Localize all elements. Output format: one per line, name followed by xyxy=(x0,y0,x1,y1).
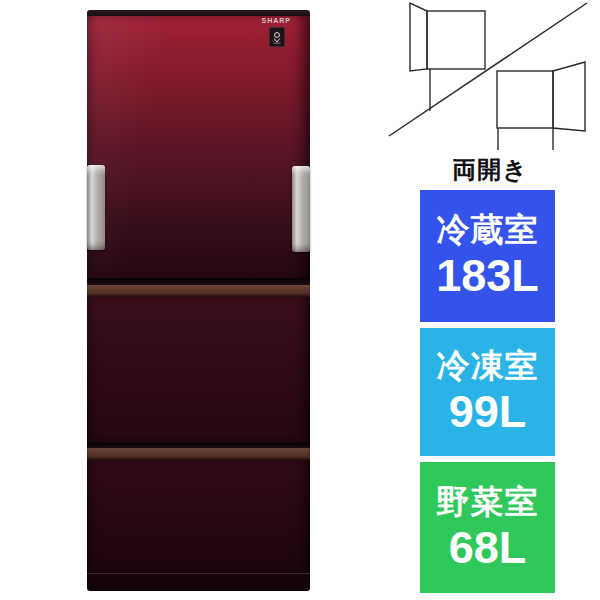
door-open-diagram xyxy=(378,0,598,155)
plasmacluster-icon xyxy=(269,27,285,47)
badge-label: 冷蔵室 xyxy=(420,212,555,248)
badge-label: 冷凍室 xyxy=(420,348,555,384)
badge-value: 68L xyxy=(420,524,555,572)
left-open-door-icon xyxy=(410,3,485,111)
door-drawer-seam xyxy=(87,278,310,285)
bottom-drawer-handle-bar xyxy=(87,448,310,460)
refrigerator-image: SHARP xyxy=(87,10,310,590)
capacity-badge-freezer: 冷凍室 99L xyxy=(420,328,555,456)
badge-label: 野菜室 xyxy=(420,484,555,520)
fridge-handle-left xyxy=(87,165,105,250)
capacity-badge-refrigerator: 冷蔵室 183L xyxy=(420,190,555,322)
fridge-bottom-drawer xyxy=(87,460,310,573)
fridge-main-door xyxy=(87,16,310,288)
capacity-badge-vegetable: 野菜室 68L xyxy=(420,462,555,593)
right-open-door-icon xyxy=(497,62,585,150)
fridge-base-kickplate xyxy=(87,573,310,591)
door-type-label: 両開き xyxy=(420,154,560,186)
badge-value: 99L xyxy=(420,388,555,436)
badge-value: 183L xyxy=(420,252,555,300)
sharp-logo: SHARP xyxy=(261,16,291,26)
middle-drawer-handle-bar xyxy=(87,285,310,297)
fridge-middle-drawer xyxy=(87,297,310,443)
fridge-handle-right xyxy=(292,166,310,252)
product-listing-image: { "product_image": { "brand_logo": "SHAR… xyxy=(0,0,600,600)
